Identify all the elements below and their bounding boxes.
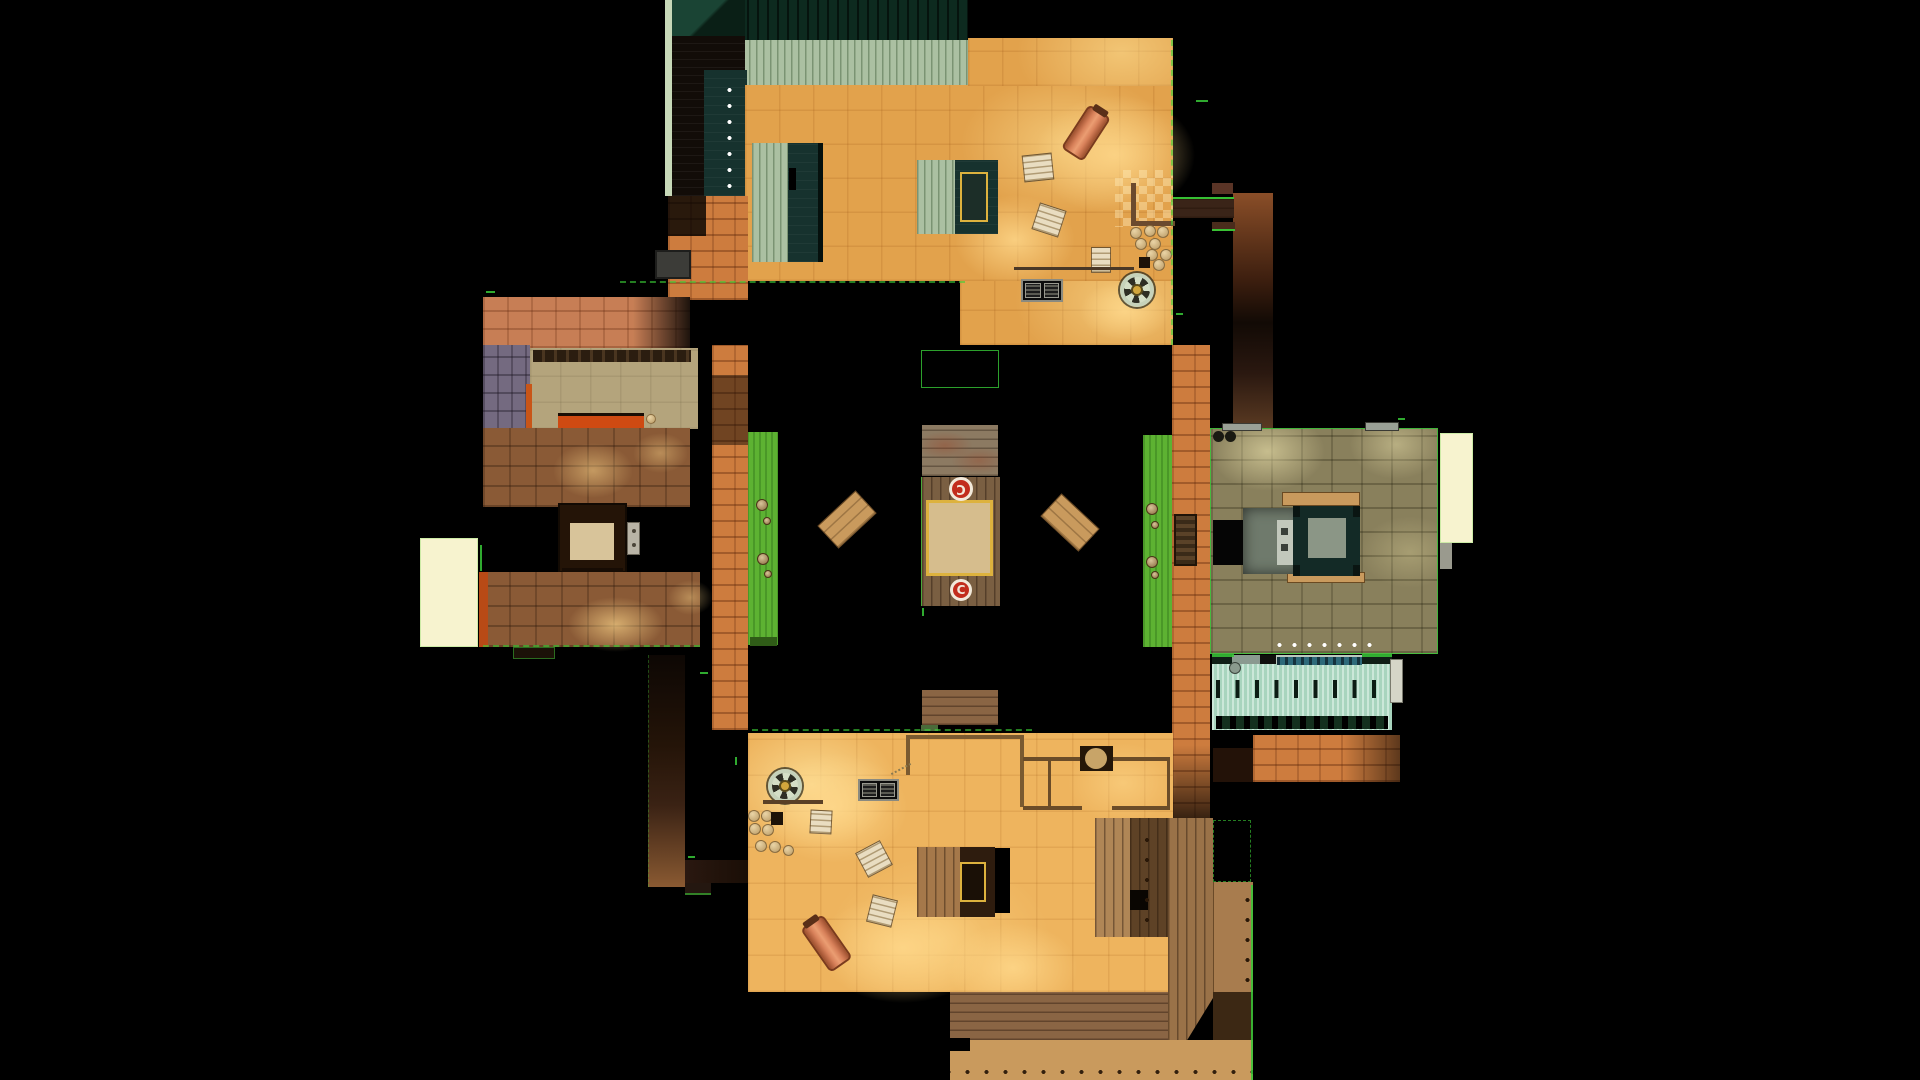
corridor-southwest [648, 655, 685, 887]
walkway-east [1168, 818, 1213, 1042]
plant-pot-icon [756, 499, 768, 511]
dark-table [655, 250, 691, 279]
map-overview-screenshot: C C [0, 0, 1920, 1080]
low-wall [1020, 735, 1024, 807]
crate-dark-icon [1139, 257, 1150, 268]
bombsite-c-marker-bottom: C [950, 579, 972, 601]
top-left-connector [668, 196, 748, 300]
map-edge [1171, 40, 1173, 345]
deck-boardwalk [950, 1040, 1253, 1080]
pallet-icon [809, 809, 832, 834]
grill-table-icon [858, 779, 899, 801]
low-wall [763, 800, 823, 804]
sack-icon [748, 810, 760, 822]
structure-shadow [995, 848, 1010, 913]
pool-rail [1277, 657, 1362, 665]
low-wall [1048, 760, 1051, 806]
map-tick [486, 291, 495, 293]
pallet-icon [1022, 153, 1055, 183]
bridge-step [1212, 222, 1235, 231]
ramp-icon [1040, 493, 1099, 551]
map-tick [1398, 418, 1405, 420]
map-tick [922, 608, 924, 616]
fence-line [1014, 267, 1134, 270]
map-tick [1196, 100, 1208, 102]
map-edge [1212, 654, 1234, 657]
sack-icon [749, 823, 761, 835]
walkway-nailed [1213, 882, 1253, 992]
awning-lights [727, 82, 732, 194]
plant-pot-icon [1151, 571, 1159, 579]
well-icon [1080, 746, 1113, 771]
sack-icon [769, 841, 781, 853]
sack-icon [755, 840, 767, 852]
pool-gutter [1216, 716, 1388, 729]
bridge-step [1212, 183, 1233, 194]
low-wall [906, 735, 1024, 739]
sack-icon [783, 845, 794, 856]
fountain-wheel-icon [768, 769, 802, 803]
orange-wall [479, 572, 488, 647]
step-platform [1365, 422, 1399, 431]
ramp-icon [817, 490, 876, 548]
plant-pot-icon [763, 517, 771, 525]
ball-icon [646, 414, 656, 424]
pillar [526, 384, 532, 429]
shelf-row [533, 350, 691, 362]
deck-lower [950, 992, 1168, 1040]
pool-side-step [1390, 659, 1403, 703]
corridor-link [685, 860, 748, 883]
checker-floor-patch [1115, 170, 1173, 227]
fountain-wheel-icon [1120, 273, 1154, 307]
crate-dark-icon [771, 812, 783, 825]
west-cobble-upper [483, 428, 690, 507]
pool-drain [1229, 662, 1241, 674]
top-building-edge-strip [665, 0, 672, 196]
porch-structure [752, 143, 823, 262]
map-tick [735, 757, 737, 765]
sack-icon [1135, 238, 1147, 250]
map-tick [1176, 313, 1183, 315]
shed-structure [1095, 818, 1170, 937]
pool-edge-lights [1272, 641, 1372, 649]
shadow-passage [1213, 748, 1253, 782]
bench-icon [1174, 514, 1197, 566]
sack-icon [1144, 225, 1156, 237]
deck-notch [950, 1038, 970, 1051]
courtyard-pit [921, 350, 999, 388]
map-edge [752, 729, 1032, 731]
barrels-mark [1225, 431, 1236, 442]
west-band [483, 297, 690, 348]
corridor-stub [685, 883, 711, 895]
grass-strip-east [1143, 435, 1172, 647]
bombsite-letter: C [957, 583, 966, 597]
fence-piece [513, 647, 555, 659]
low-wall [1023, 757, 1082, 761]
map-edge [620, 281, 965, 283]
sack-icon [762, 824, 774, 836]
east-band [1253, 735, 1400, 782]
counter-red [558, 413, 644, 428]
bombsite-letter: C [956, 482, 966, 497]
step-platform [1222, 423, 1262, 431]
low-wall [1112, 757, 1170, 761]
pool-ladder-ticks [1216, 680, 1381, 698]
gray-ledge [1440, 543, 1452, 569]
top-building-awning [704, 70, 747, 196]
west-purple-brick [483, 345, 530, 430]
grass-strip-west [747, 432, 778, 645]
map-edge [1251, 885, 1253, 1080]
corridor-west [712, 345, 748, 730]
plant-pot-icon [1146, 503, 1158, 515]
corridor-northeast [1233, 193, 1273, 428]
wall-corner [1131, 183, 1136, 225]
walkway-dark [1213, 992, 1253, 1040]
barrels-mark [1213, 431, 1224, 442]
pit-marked [1213, 820, 1251, 882]
grass-cap [750, 637, 777, 646]
sack-icon [1157, 226, 1169, 238]
well-table [558, 503, 627, 573]
map-edge [480, 545, 482, 571]
sack-icon [1153, 259, 1165, 271]
bridge-south [922, 690, 998, 725]
map-tick [688, 856, 695, 858]
bridge-east [1173, 197, 1234, 218]
bombsite-rug [926, 500, 993, 576]
skylight-panel-east [1440, 433, 1473, 543]
bridge-landing [922, 425, 998, 476]
machine-structure [1213, 492, 1360, 584]
low-wall [1023, 806, 1082, 810]
plant-pot-icon [757, 553, 769, 565]
map-tick [700, 672, 708, 674]
top-building-floor-ne [968, 38, 1173, 86]
plant-pot-icon [764, 570, 772, 578]
low-wall [906, 735, 910, 775]
porch-structure [917, 160, 998, 234]
map-edge [1362, 654, 1392, 657]
stage-structure [917, 847, 995, 917]
corridor-east [1172, 345, 1210, 820]
cart-icon [627, 522, 640, 555]
plant-pot-icon [1151, 521, 1159, 529]
grill-table-icon [1021, 279, 1063, 302]
plant-pot-icon [1146, 556, 1158, 568]
low-wall [1112, 806, 1170, 810]
low-wall [1167, 757, 1170, 810]
bombsite-c-marker-top: C [949, 477, 973, 501]
west-cobble-lower [483, 572, 700, 647]
skylight-panel-west [420, 538, 478, 647]
